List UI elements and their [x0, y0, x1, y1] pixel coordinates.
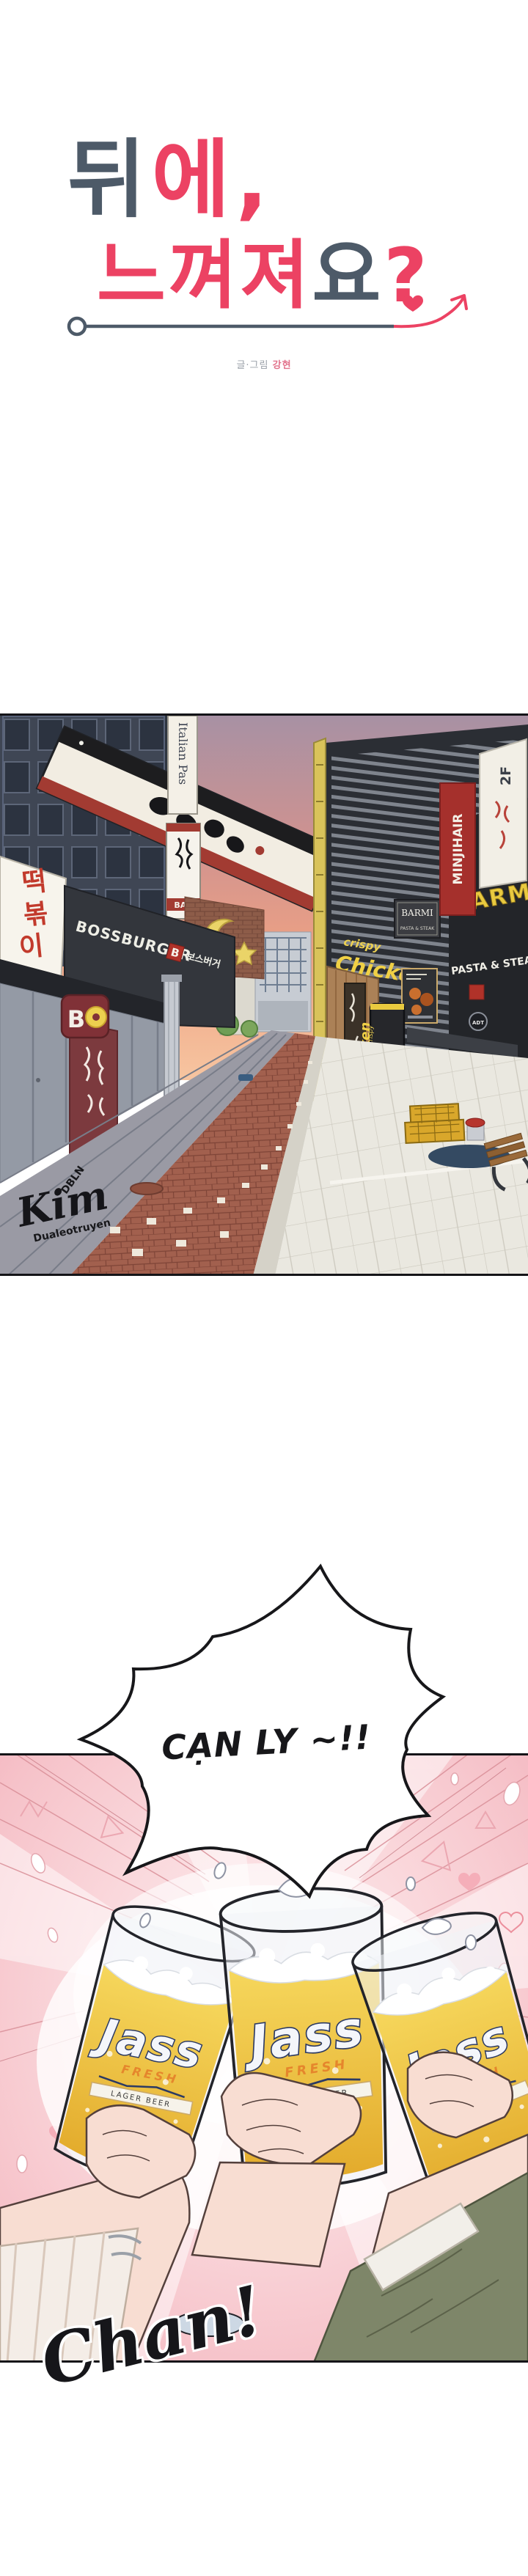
heart-icon — [403, 296, 423, 312]
2f-text: 2F — [498, 766, 514, 785]
navy-mat — [428, 1145, 510, 1168]
author-credit: 글·그림 강현 — [0, 357, 528, 371]
bo-donut-sign: B — [62, 995, 109, 1038]
adt-text: ADT — [472, 1020, 484, 1026]
title-logo: 뒤에, 느껴져요? — [0, 138, 528, 314]
italian-pasta-text: Italian Pas — [176, 722, 190, 785]
minjihair-text: MINJIHAIR — [451, 814, 466, 885]
barmi-small-sign: BARMI PASTA & STEAK — [395, 900, 440, 938]
blue-drain — [238, 1074, 253, 1081]
title-line-1: 뒤에, — [0, 138, 528, 223]
minjihair-sign: MINJIHAIR — [440, 783, 475, 915]
barmi-small-text: BARMI — [401, 908, 433, 918]
tteok-char-1: 떡 — [21, 866, 48, 898]
chicken-poster — [402, 969, 437, 1023]
manhole — [131, 1183, 163, 1195]
credit-label: 글·그림 — [236, 360, 268, 371]
barmi-small-sub: PASTA & STEAK — [400, 926, 435, 931]
credit-author: 강현 — [273, 360, 292, 371]
title-seg: 뒤 — [67, 131, 152, 230]
tteok-char-2: 볶 — [22, 898, 49, 931]
panel-border-top — [0, 713, 528, 716]
bo-letter: B — [67, 1005, 85, 1033]
underline-circle — [69, 318, 85, 334]
second-floor-sign: 2F — [480, 739, 527, 888]
center-arm — [192, 2162, 345, 2267]
red-bucket — [466, 1118, 485, 1140]
yellow-crates — [404, 1104, 465, 1143]
speech-bubble: CẠN LY ~!! — [67, 1557, 458, 1926]
italian-pasta-sign: Italian Pas — [168, 716, 197, 814]
title-seg: 에, — [152, 131, 274, 230]
tteok-char-3: 이 — [18, 931, 45, 963]
webtoon-page: 뒤에, 느껴져요? 글·그림 강현 — [0, 0, 528, 2576]
street-scene-panel: Italian Pas BAR 떡 볶 이 — [0, 713, 528, 1276]
panel-border-bottom — [0, 1274, 528, 1276]
